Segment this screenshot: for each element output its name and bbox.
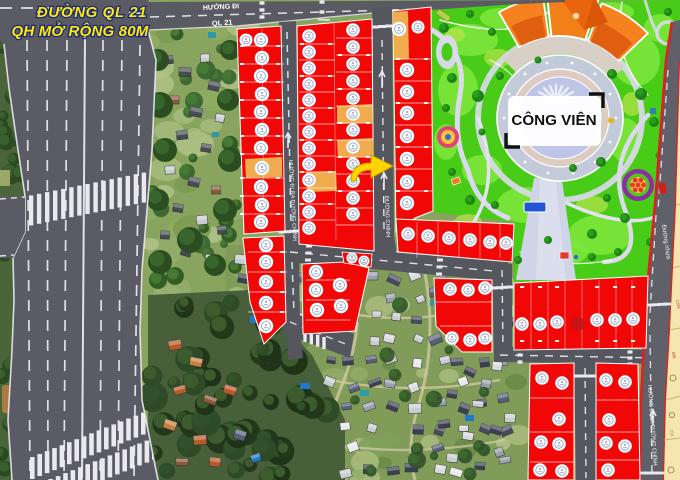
svg-text:CÔNG VIÊN: CÔNG VIÊN (511, 111, 596, 129)
svg-text:QH MỞ RỘNG 80M: QH MỞ RỘNG 80M (11, 22, 148, 40)
svg-text:ĐƯỜNG QL 21: ĐƯỜNG QL 21 (37, 3, 147, 21)
svg-text:ĐƯỜNG CHÍNH: ĐƯỜNG CHÍNH (383, 196, 391, 238)
svg-text:QL 21: QL 21 (212, 18, 233, 28)
